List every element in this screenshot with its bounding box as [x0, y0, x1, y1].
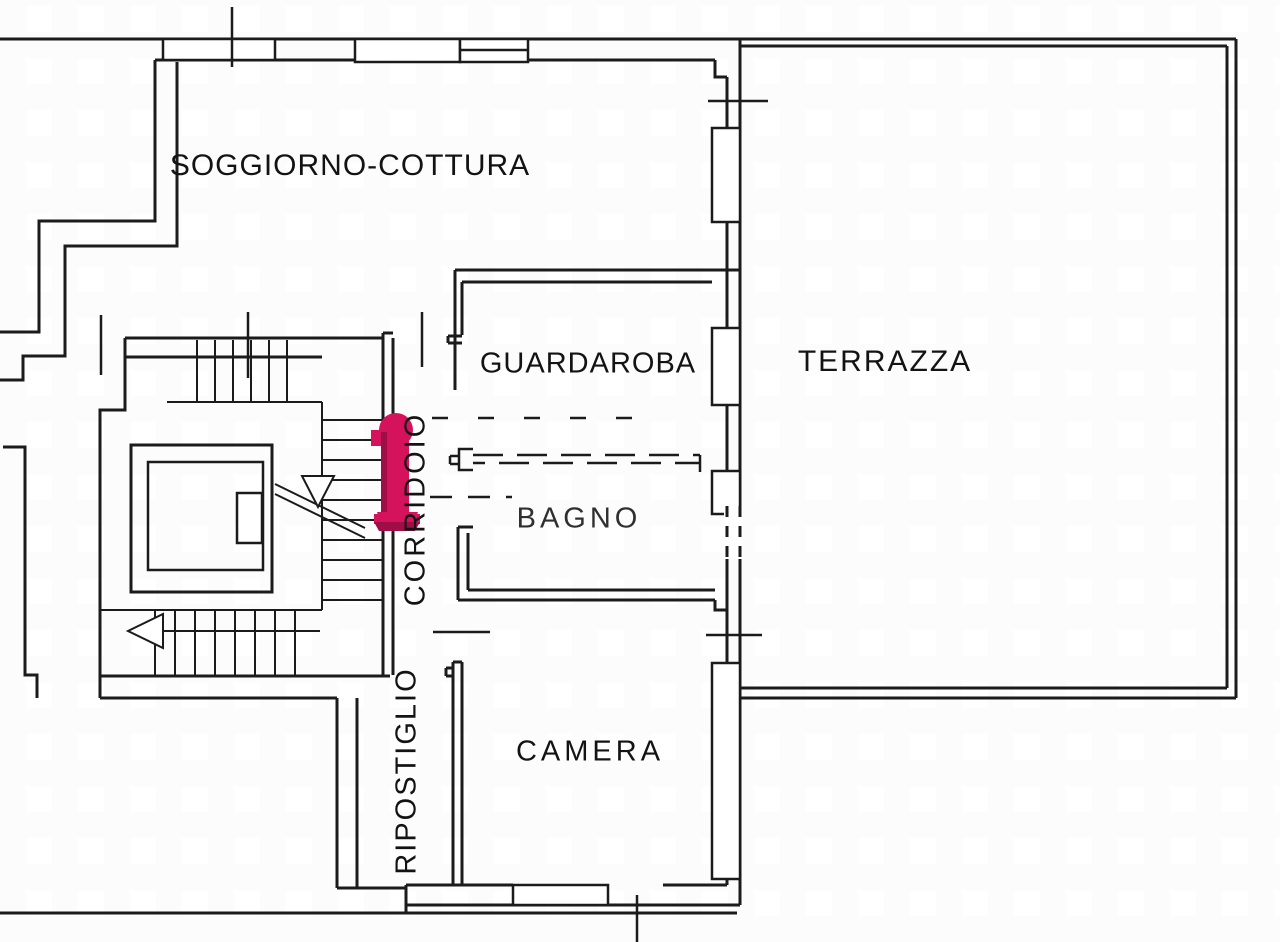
dashed-projection-lines [430, 418, 700, 497]
room-label-guardaroba: GUARDAROBA [480, 348, 696, 381]
floor-plan-drawing [0, 0, 1280, 942]
elevator [131, 445, 272, 592]
room-label-ripostiglio: RIPOSTIGLIO [391, 667, 424, 874]
door-openings [101, 7, 768, 942]
room-label-camera: CAMERA [516, 736, 664, 769]
room-label-corridoio: CORRIDOIO [400, 412, 433, 607]
stair-arrow-left-icon [128, 614, 163, 648]
dashed-wall-segment [724, 506, 743, 559]
stair-arrow-down-icon [302, 476, 334, 507]
room-label-bagno: BAGNO [517, 503, 642, 536]
floor-plan-page: SOGGIORNO-COTTURA GUARDAROBA TERRAZZA BA… [0, 0, 1280, 942]
room-label-soggiorno-cottura: SOGGIORNO-COTTURA [170, 149, 530, 183]
room-label-terrazza: TERRAZZA [798, 345, 972, 379]
